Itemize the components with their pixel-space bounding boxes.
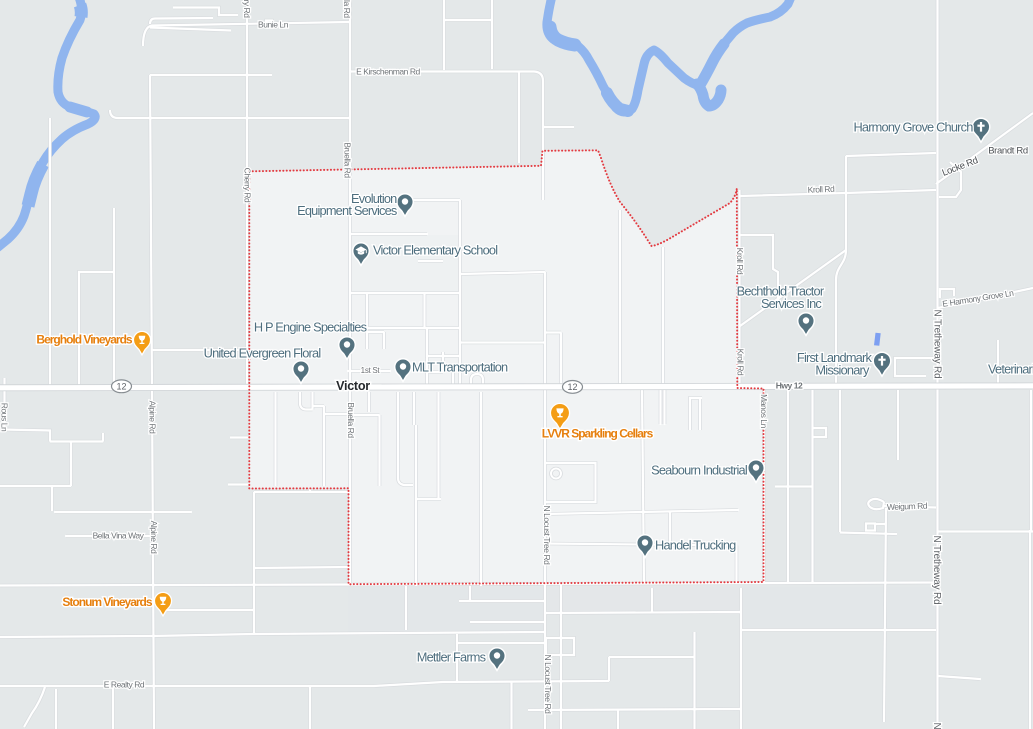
svg-text:12: 12 <box>116 381 126 391</box>
svg-text:herry Rd: herry Rd <box>242 0 252 18</box>
svg-text:Berghold Vineyards: Berghold Vineyards <box>36 333 132 347</box>
svg-text:N Tretheway Rd: N Tretheway Rd <box>931 536 942 605</box>
svg-text:N Locust Tree Rd: N Locust Tree Rd <box>542 506 552 566</box>
svg-text:Mettler Farms: Mettler Farms <box>417 649 486 664</box>
svg-text:Brandt Rd: Brandt Rd <box>988 146 1028 157</box>
svg-text:Bruella Rd: Bruella Rd <box>346 402 356 438</box>
svg-text:Bruella Rd: Bruella Rd <box>342 0 352 18</box>
svg-text:Bruella Rd: Bruella Rd <box>342 142 352 178</box>
svg-text:United Evergreen Floral: United Evergreen Floral <box>204 345 321 360</box>
svg-text:LVVR Sparkling Cellars: LVVR Sparkling Cellars <box>542 427 654 441</box>
svg-text:Rous Ln: Rous Ln <box>0 403 9 432</box>
svg-text:Victor: Victor <box>336 379 370 393</box>
svg-text:N Locust Tree Rd: N Locust Tree Rd <box>543 655 553 715</box>
svg-text:12: 12 <box>567 382 577 392</box>
svg-text:1st St: 1st St <box>361 366 381 375</box>
svg-text:Alpine Rd: Alpine Rd <box>149 521 159 555</box>
svg-text:N Tretheway Rd: N Tretheway Rd <box>931 723 942 729</box>
svg-text:Bunie Ln: Bunie Ln <box>258 19 289 29</box>
svg-text:N Tretheway Rd: N Tretheway Rd <box>931 310 942 379</box>
svg-text:Kroll Rd: Kroll Rd <box>735 349 745 376</box>
svg-text:Handel Trucking: Handel Trucking <box>655 537 736 552</box>
svg-text:Seabourn Industrial: Seabourn Industrial <box>651 462 747 477</box>
svg-text:Manos Ln: Manos Ln <box>759 394 769 428</box>
svg-text:E Realty Rd: E Realty Rd <box>104 679 145 689</box>
svg-text:E Kirschenman Rd: E Kirschenman Rd <box>356 66 420 76</box>
svg-text:MLT Transportation: MLT Transportation <box>412 359 508 374</box>
svg-text:Harmony Grove Church: Harmony Grove Church <box>853 119 973 134</box>
svg-text:Weigum Rd: Weigum Rd <box>887 501 928 512</box>
svg-text:Alpine Rd: Alpine Rd <box>147 401 157 435</box>
svg-text:Victor Elementary School: Victor Elementary School <box>373 242 497 257</box>
svg-text:Hwy 12: Hwy 12 <box>776 380 803 390</box>
svg-text:Services Inc: Services Inc <box>761 296 822 311</box>
svg-text:Bella Vina Way: Bella Vina Way <box>93 530 145 540</box>
svg-text:H P Engine Specialties: H P Engine Specialties <box>254 319 367 334</box>
svg-text:Kroll Rd: Kroll Rd <box>735 248 745 275</box>
svg-text:Kroll Rd: Kroll Rd <box>807 184 835 195</box>
svg-text:Cherry Rd: Cherry Rd <box>242 168 252 203</box>
svg-text:Missionary: Missionary <box>815 362 870 377</box>
svg-text:Veterinaria: Veterinaria <box>988 361 1033 376</box>
svg-text:Stonum Vineyards: Stonum Vineyards <box>62 595 152 609</box>
svg-text:Equipment Services: Equipment Services <box>297 203 397 218</box>
